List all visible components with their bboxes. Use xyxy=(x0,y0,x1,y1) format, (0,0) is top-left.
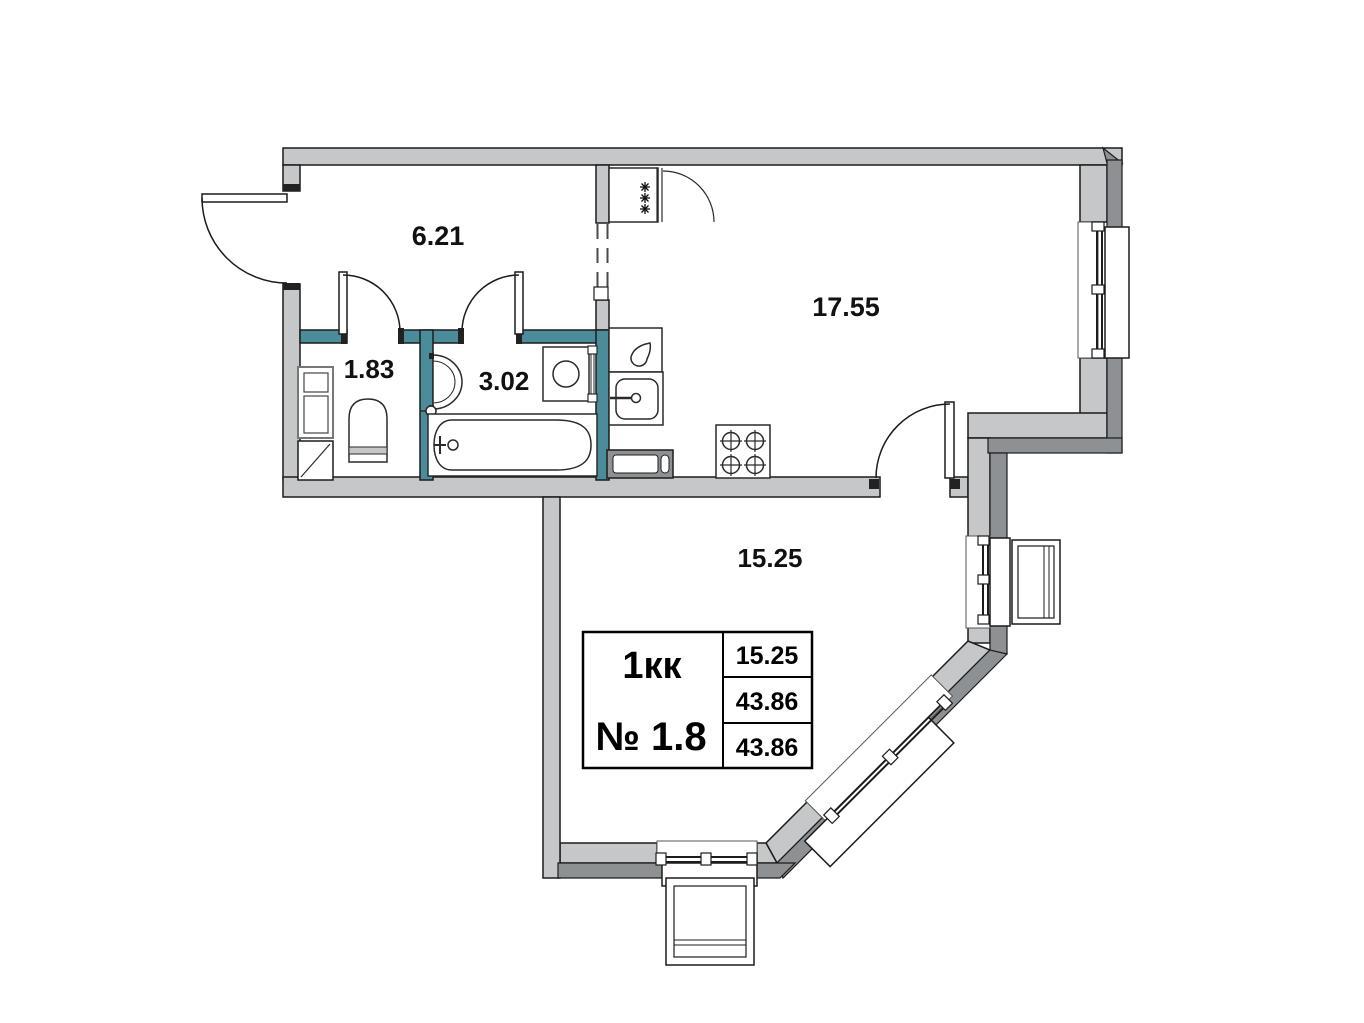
room-area-label: 15.25 xyxy=(737,543,802,573)
unit-total-area-value: 43.86 xyxy=(736,688,799,716)
wall-bottom-left-of-window xyxy=(560,843,657,863)
wc-area-label: 1.83 xyxy=(344,354,395,384)
bathroom-area-label: 3.02 xyxy=(479,366,530,396)
wall-step xyxy=(968,413,1107,438)
bathroom-door xyxy=(458,272,523,344)
diagonal-window xyxy=(785,675,977,867)
wall-room-right-upper xyxy=(968,438,990,538)
toilet-icon xyxy=(349,399,387,462)
balcony-bottom xyxy=(666,878,754,965)
unit-full-area-value: 43.86 xyxy=(736,734,799,762)
stove-icon xyxy=(716,425,770,478)
bottom-window xyxy=(656,841,757,965)
wall-room-left xyxy=(543,497,560,878)
kitchen-counter-icon xyxy=(609,328,662,372)
fridge-icon xyxy=(609,168,714,222)
wall-middle-horizontal xyxy=(283,477,880,497)
unit-type-label: 1кк xyxy=(622,645,682,687)
floor-plan-page: 6.21 17.55 1.83 3.02 15.25 1кк № 1.8 15.… xyxy=(0,0,1364,1023)
bathtub-icon xyxy=(428,414,597,476)
floor-plan-drawing: 6.21 17.55 1.83 3.02 15.25 1кк № 1.8 15.… xyxy=(0,0,1364,1023)
wall-divider-stub-top xyxy=(596,165,609,223)
room-right-window xyxy=(966,536,1060,628)
wall-step-dark-band xyxy=(988,438,1122,453)
vent-shaft-icon xyxy=(298,367,333,480)
washing-machine-icon xyxy=(543,346,597,402)
window-outer-sill xyxy=(990,538,1010,626)
unit-info-card: 1кк № 1.8 15.25 43.86 43.86 xyxy=(583,632,812,768)
kitchen-window xyxy=(1078,222,1129,358)
wall-right-above-window xyxy=(1080,165,1107,222)
unit-room-area-value: 15.25 xyxy=(736,642,799,670)
wall-divider-stub-bottom xyxy=(596,300,609,331)
kitchen-sink-icon xyxy=(609,372,663,425)
unit-number-label: № 1.8 xyxy=(595,715,706,759)
room-door xyxy=(869,402,960,489)
hallway-area-label: 6.21 xyxy=(412,221,465,251)
wall-room-right-dark-upper xyxy=(990,453,1007,538)
wall-top xyxy=(283,148,1122,165)
window-outer-sill xyxy=(1105,227,1129,358)
wall-room-right-dark-lower xyxy=(990,625,1007,654)
kitchen-cabinet-icon xyxy=(607,450,673,478)
entrance-door xyxy=(202,184,300,290)
balcony-right xyxy=(1012,540,1060,624)
kitchen-living-area-label: 17.55 xyxy=(812,292,880,322)
partition-joint-square xyxy=(594,287,608,300)
wc-door xyxy=(339,272,404,344)
